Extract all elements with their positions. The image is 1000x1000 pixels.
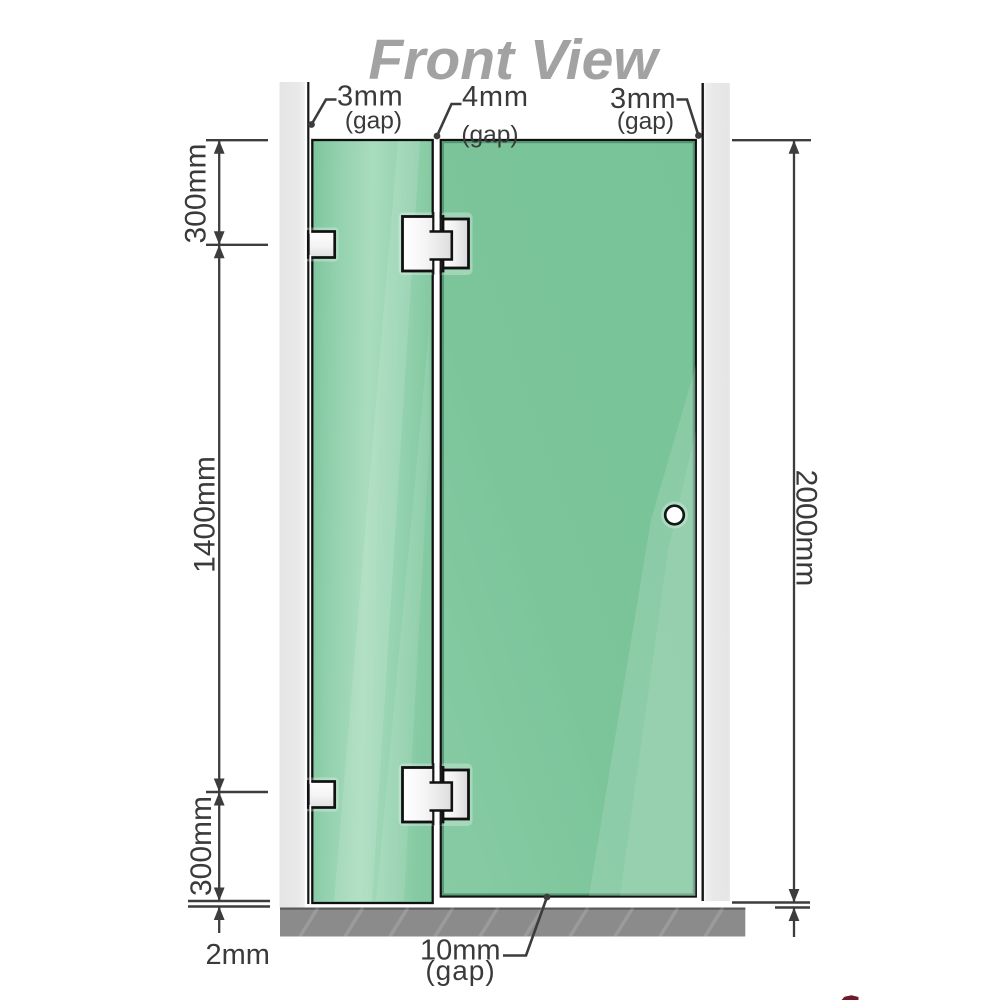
svg-text:(gap): (gap) [617, 108, 674, 135]
svg-text:(gap): (gap) [461, 122, 518, 149]
svg-text:300mm: 300mm [185, 796, 218, 896]
svg-text:1400mm: 1400mm [189, 456, 222, 573]
svg-text:(gap): (gap) [425, 955, 495, 986]
svg-text:2mm: 2mm [205, 939, 269, 971]
svg-text:(gap): (gap) [345, 108, 402, 135]
svg-text:4mm: 4mm [462, 81, 529, 113]
svg-text:2000mm: 2000mm [790, 470, 823, 587]
svg-text:300mm: 300mm [180, 143, 213, 243]
